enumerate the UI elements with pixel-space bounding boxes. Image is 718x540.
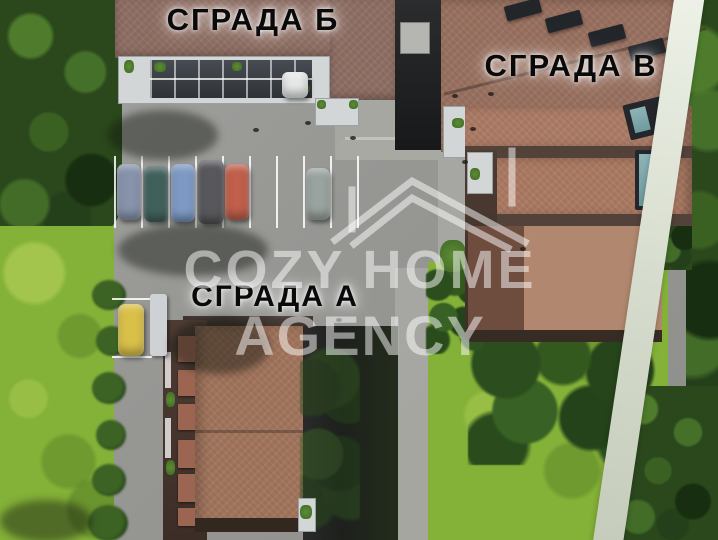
parking-line: [303, 156, 305, 228]
bush: [92, 464, 126, 496]
building-b-label: СГРАДА Б: [138, 4, 368, 35]
bush: [88, 505, 128, 540]
rooftop-elevator-box: [400, 22, 430, 54]
car-white: [282, 72, 308, 98]
site-plan-render: СГРАДА Б СГРАДА В СГРАДА А COZY HOME AGE…: [0, 0, 718, 540]
skylight-glass: [630, 106, 651, 133]
parked-car: [225, 164, 249, 220]
parked-van: [198, 160, 224, 224]
building-v-label: СГРАДА В: [458, 50, 684, 81]
watermark-line2: AGENCY: [180, 308, 540, 364]
terrace-plant: [232, 62, 242, 71]
parking-line: [141, 156, 143, 228]
balcony-rail: [165, 352, 171, 388]
building-a-bottom-edge: [195, 518, 307, 532]
balcony-rail: [165, 418, 171, 458]
parked-car: [117, 164, 141, 220]
parked-car-yellow: [118, 304, 144, 356]
parking-line: [195, 156, 197, 228]
parking-line: [249, 156, 251, 228]
bird: [350, 136, 356, 140]
trees-top-left: [0, 0, 122, 240]
parked-car: [306, 168, 330, 220]
tree-shadow: [108, 110, 218, 160]
parking-line: [112, 356, 152, 358]
terrace-plant: [124, 60, 134, 73]
bush: [92, 372, 126, 404]
parking-line: [112, 298, 152, 300]
parking-line: [114, 156, 116, 228]
terrace-plant: [317, 100, 326, 109]
bird: [253, 128, 259, 132]
bird: [398, 131, 404, 135]
terrace-plant: [154, 62, 166, 72]
parked-car: [171, 164, 195, 222]
bird: [488, 92, 494, 96]
bird: [470, 127, 476, 131]
terrace-plant: [452, 118, 464, 128]
bush: [96, 420, 126, 450]
bird: [452, 94, 458, 98]
roof-ridge-line: [195, 430, 307, 433]
tree-shadow: [0, 500, 92, 540]
bird: [305, 121, 311, 125]
terrace-plant: [349, 100, 358, 109]
parking-line: [168, 156, 170, 228]
watermark-line1: COZY HOME: [180, 243, 540, 297]
balcony-plant: [166, 460, 175, 475]
parking-line: [276, 156, 278, 228]
parked-car: [144, 166, 168, 222]
balcony-plant: [166, 392, 175, 407]
terrace-plant: [300, 505, 312, 519]
